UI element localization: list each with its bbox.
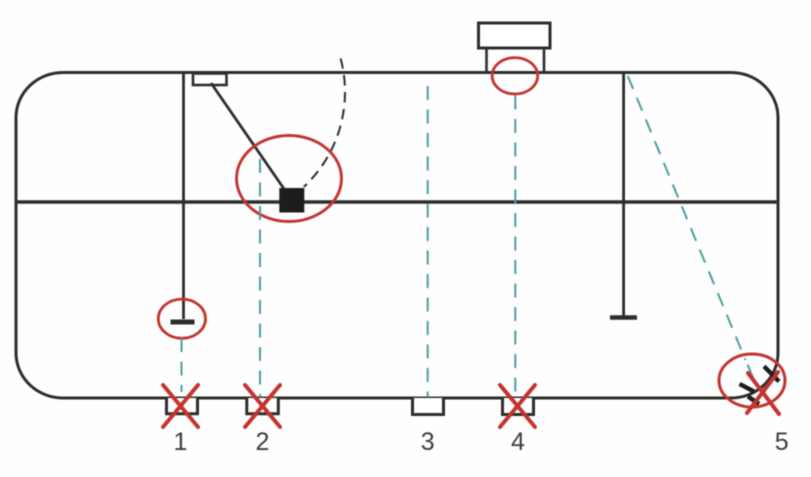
svg-text:1: 1: [174, 428, 188, 456]
svg-text:5: 5: [775, 428, 789, 456]
svg-text:4: 4: [511, 428, 525, 456]
svg-text:2: 2: [256, 428, 270, 456]
svg-text:3: 3: [421, 428, 435, 456]
